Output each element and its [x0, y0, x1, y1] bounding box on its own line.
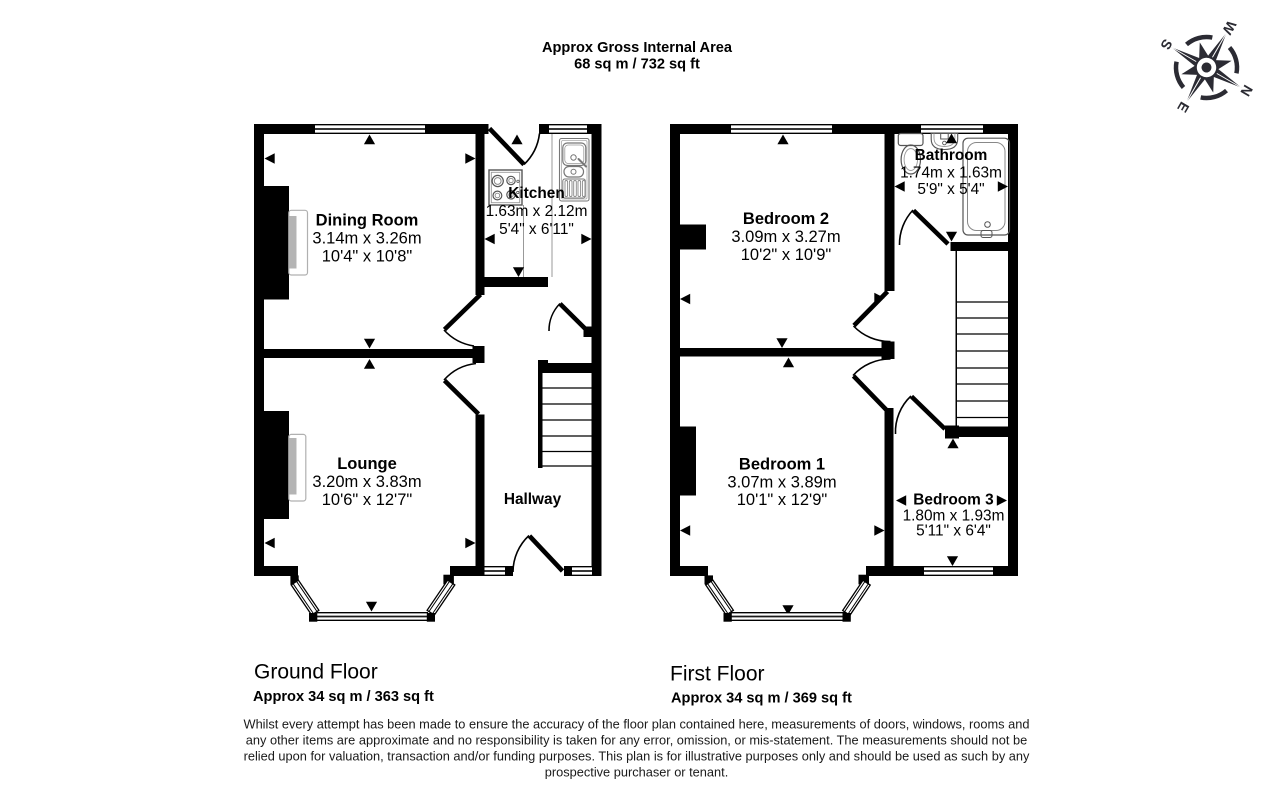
svg-text:Bedroom 1: Bedroom 1 [739, 456, 825, 474]
svg-text:Approx 34 sq m / 363 sq ft: Approx 34 sq m / 363 sq ft [253, 689, 434, 705]
svg-text:Bedroom 2: Bedroom 2 [743, 210, 829, 228]
svg-text:3.20m x 3.83m: 3.20m x 3.83m [312, 473, 421, 491]
svg-text:First Floor: First Floor [670, 663, 765, 686]
svg-text:1.63m x 2.12m: 1.63m x 2.12m [486, 203, 588, 220]
svg-text:5'9" x 5'4": 5'9" x 5'4" [917, 181, 984, 198]
svg-text:10'6" x 12'7": 10'6" x 12'7" [322, 491, 413, 509]
svg-text:Approx 34 sq m / 369 sq ft: Approx 34 sq m / 369 sq ft [671, 691, 852, 707]
svg-text:Bathroom: Bathroom [915, 147, 988, 164]
svg-text:prospective purchaser or tenan: prospective purchaser or tenant. [545, 765, 729, 780]
svg-text:68 sq m / 732 sq ft: 68 sq m / 732 sq ft [574, 57, 700, 73]
svg-text:10'1" x 12'9": 10'1" x 12'9" [737, 491, 828, 509]
svg-text:Ground Floor: Ground Floor [254, 661, 378, 684]
svg-text:5'11" x 6'4": 5'11" x 6'4" [916, 523, 991, 540]
svg-text:Dining Room: Dining Room [316, 212, 419, 230]
svg-text:3.14m x 3.26m: 3.14m x 3.26m [312, 230, 421, 248]
svg-text:10'4" x 10'8": 10'4" x 10'8" [322, 248, 413, 266]
svg-text:Bedroom 3: Bedroom 3 [913, 492, 993, 509]
svg-text:Whilst every attempt has been: Whilst every attempt has been made to en… [243, 717, 1029, 732]
svg-text:5'4" x 6'11": 5'4" x 6'11" [499, 221, 574, 238]
svg-text:Lounge: Lounge [337, 455, 397, 473]
svg-text:Approx Gross Internal Area: Approx Gross Internal Area [542, 40, 733, 56]
svg-text:3.09m x 3.27m: 3.09m x 3.27m [731, 228, 840, 246]
svg-text:Kitchen: Kitchen [508, 185, 564, 202]
svg-text:1.74m x 1.63m: 1.74m x 1.63m [900, 165, 1002, 182]
svg-text:Hallway: Hallway [504, 491, 562, 508]
svg-text:10'2" x 10'9": 10'2" x 10'9" [741, 246, 832, 264]
svg-text:any other items are approximat: any other items are approximate and no r… [246, 733, 1027, 748]
svg-text:relied upon for valuation, tra: relied upon for valuation, transaction a… [244, 749, 1030, 764]
svg-text:3.07m x 3.89m: 3.07m x 3.89m [727, 474, 836, 492]
